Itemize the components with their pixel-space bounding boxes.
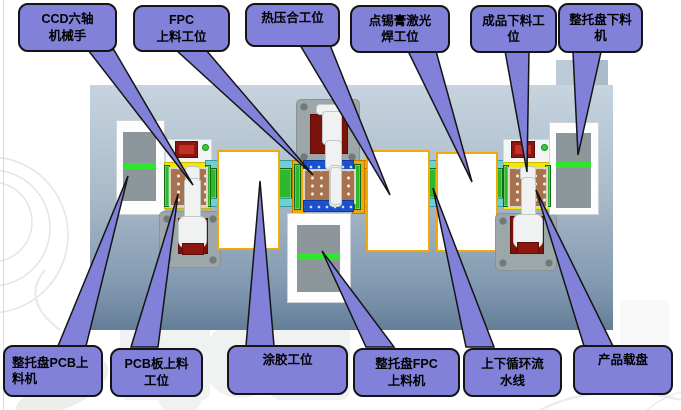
tail-finished-product-unloading-station bbox=[505, 51, 529, 172]
tail-full-tray-unloading-machine bbox=[573, 52, 601, 155]
callout-ccd-six-axis-robot: CCD六轴 机械手 bbox=[18, 3, 117, 52]
callout-pcb-board-loading-station: PCB板上料 工位 bbox=[110, 348, 203, 397]
callout-solder-paste-laser-welding-station: 点锡膏激光 焊工位 bbox=[350, 5, 450, 53]
callout-gluing-station: 涂胶工位 bbox=[227, 345, 348, 395]
callout-hot-press-station: 热压合工位 bbox=[245, 3, 340, 47]
tail-up-down-circulating-conveyor bbox=[433, 188, 494, 347]
callout-full-tray-unloading-machine: 整托盘下料 机 bbox=[558, 3, 643, 53]
tail-full-tray-fpc-loading-machine bbox=[322, 251, 394, 347]
callout-product-carrier-tray: 产品载盘 bbox=[573, 345, 673, 395]
tail-solder-paste-laser-welding-station bbox=[408, 51, 472, 182]
tail-gluing-station bbox=[246, 181, 274, 346]
callout-fpc-loading-station: FPC 上料工位 bbox=[133, 5, 230, 52]
tail-ccd-six-axis-robot bbox=[88, 50, 193, 185]
tail-fpc-loading-station bbox=[176, 50, 313, 175]
callout-up-down-circulating-conveyor: 上下循环流 水线 bbox=[463, 348, 562, 397]
tail-hot-press-station bbox=[300, 45, 390, 195]
tail-full-tray-pcb-loading-machine bbox=[58, 176, 128, 346]
callout-full-tray-pcb-loading-machine: 整托盘PCB上 料机 bbox=[3, 345, 103, 397]
tail-product-carrier-tray bbox=[536, 190, 613, 346]
callout-full-tray-fpc-loading-machine: 整托盘FPC 上料机 bbox=[353, 348, 460, 397]
callout-finished-product-unloading-station: 成品下料工 位 bbox=[470, 5, 557, 53]
tail-pcb-board-loading-station bbox=[131, 194, 178, 347]
slide: { "callouts": { "top": [ "CCD六轴\n机械手", "… bbox=[0, 0, 681, 410]
